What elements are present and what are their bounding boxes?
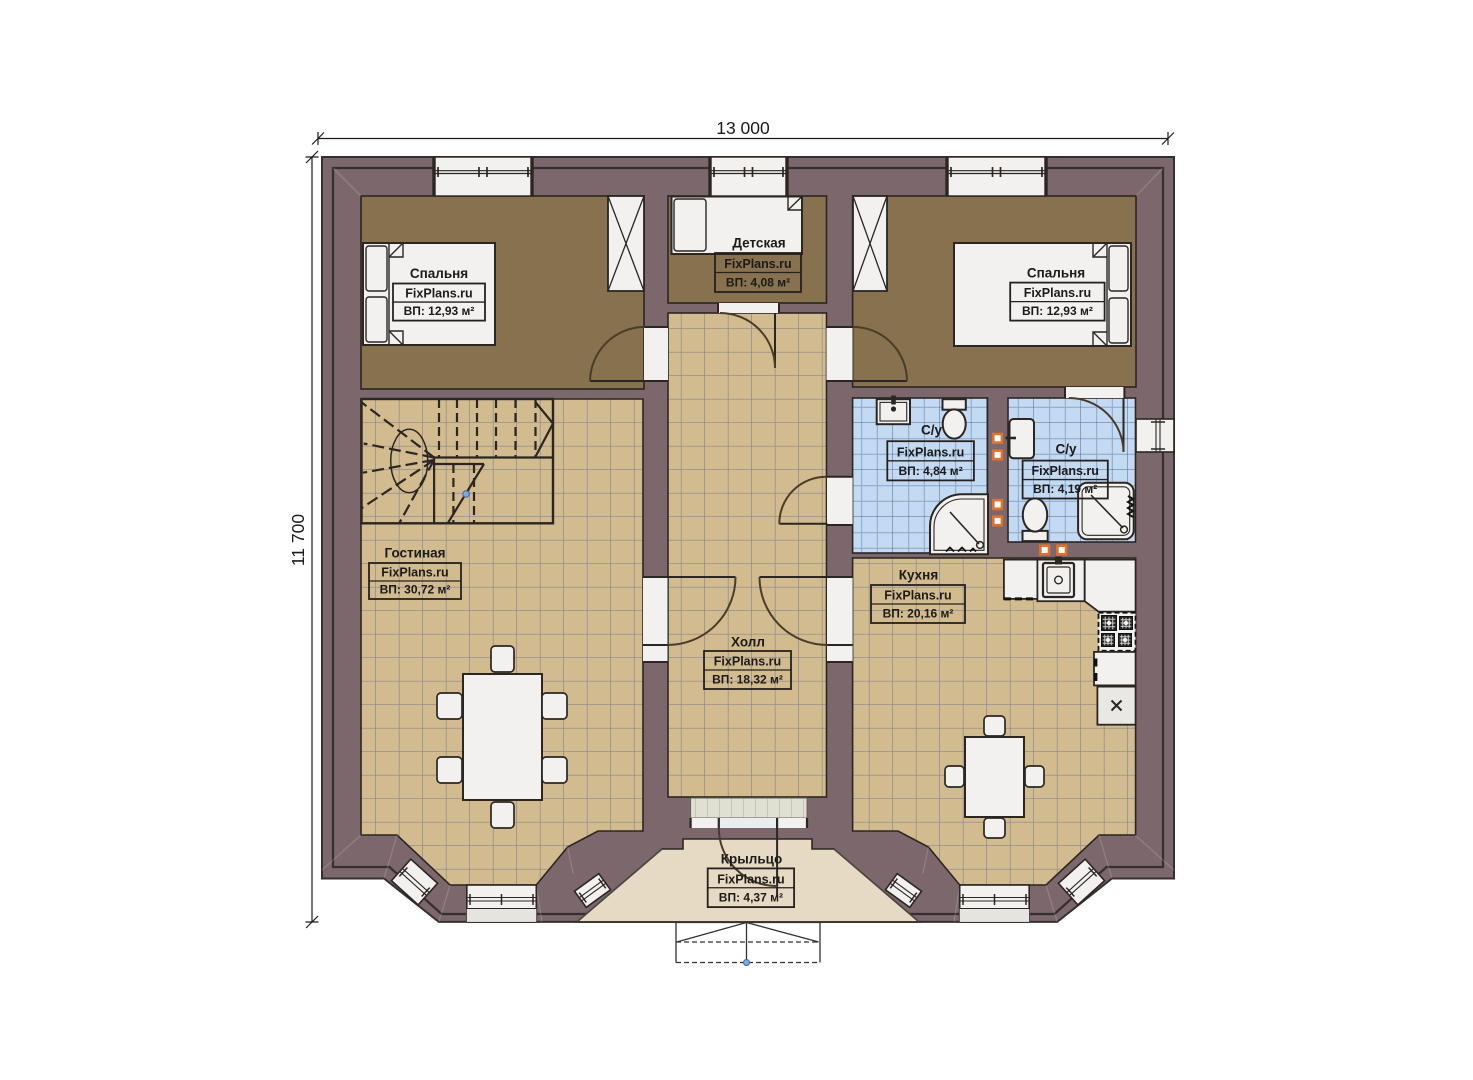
svg-text:ВП: 12,93 м²: ВП: 12,93 м²	[404, 304, 475, 318]
svg-text:Холл: Холл	[731, 635, 765, 650]
svg-text:ВП: 20,16 м²: ВП: 20,16 м²	[883, 607, 954, 621]
svg-text:Кухня: Кухня	[899, 568, 938, 583]
svg-text:ВП: 4,84 м²: ВП: 4,84 м²	[899, 464, 963, 478]
svg-text:13 000: 13 000	[716, 118, 770, 138]
svg-text:ВП: 4,08 м²: ВП: 4,08 м²	[726, 276, 790, 290]
svg-text:11 700: 11 700	[288, 514, 308, 566]
svg-text:Детская: Детская	[732, 236, 785, 251]
svg-text:ВП: 12,93 м²: ВП: 12,93 м²	[1022, 304, 1093, 318]
svg-text:Спальня: Спальня	[410, 266, 468, 281]
svg-text:ВП: 4,19 м²: ВП: 4,19 м²	[1033, 482, 1097, 496]
svg-text:FixPlans.ru: FixPlans.ru	[884, 589, 951, 603]
svg-text:FixPlans.ru: FixPlans.ru	[1032, 464, 1099, 478]
svg-text:ВП: 30,72 м²: ВП: 30,72 м²	[380, 583, 451, 597]
svg-text:FixPlans.ru: FixPlans.ru	[717, 872, 784, 886]
svg-text:FixPlans.ru: FixPlans.ru	[897, 445, 964, 459]
svg-text:Гостиная: Гостиная	[384, 546, 445, 561]
svg-text:С/у: С/у	[921, 423, 943, 438]
svg-text:FixPlans.ru: FixPlans.ru	[405, 287, 472, 301]
svg-text:Крыльцо: Крыльцо	[721, 852, 782, 867]
svg-text:Спальня: Спальня	[1027, 266, 1085, 281]
svg-text:ВП: 18,32 м²: ВП: 18,32 м²	[712, 673, 783, 687]
svg-text:ВП: 4,37 м²: ВП: 4,37 м²	[719, 891, 783, 905]
svg-text:С/у: С/у	[1055, 442, 1077, 457]
svg-text:FixPlans.ru: FixPlans.ru	[381, 566, 448, 580]
svg-text:FixPlans.ru: FixPlans.ru	[714, 655, 781, 669]
svg-text:FixPlans.ru: FixPlans.ru	[724, 257, 791, 271]
svg-text:FixPlans.ru: FixPlans.ru	[1024, 286, 1091, 300]
